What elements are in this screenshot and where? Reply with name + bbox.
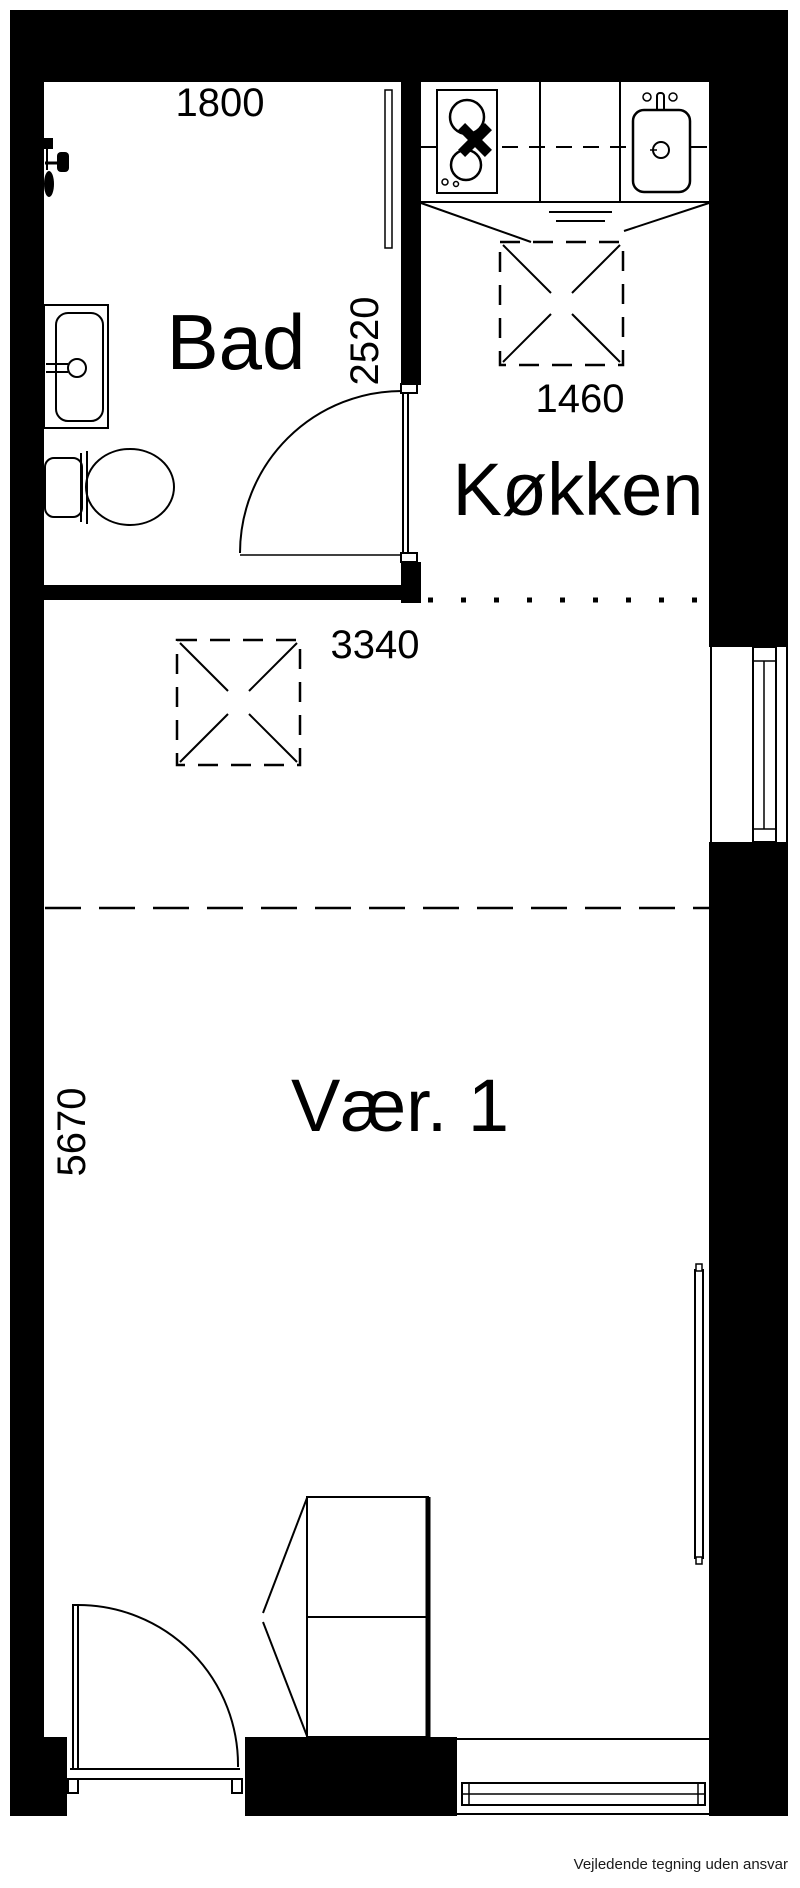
disclaimer-text: Vejledende tegning uden ansvar: [574, 1856, 788, 1873]
shower-icon: [42, 138, 69, 197]
cabinet-projection-lines: [421, 203, 709, 242]
room-label-room1: Vær. 1: [250, 1069, 550, 1143]
window-bottom: [457, 1739, 709, 1814]
dimension-room-depth: 5670: [52, 1088, 92, 1177]
entrance-door: [68, 1605, 242, 1793]
floor-plan: 1800 2520 1460 3340 5670 Bad Køkken Vær.…: [0, 0, 800, 1888]
bathroom-radiator-icon: [385, 90, 392, 248]
plan-linework: [0, 0, 800, 1888]
window-right: [711, 647, 787, 842]
kitchen-sink-icon: [633, 93, 690, 192]
dimension-room-marker: 3340: [275, 625, 475, 665]
room-label-bathroom: Bad: [136, 303, 336, 381]
kitchen-appliance-square: [500, 242, 623, 365]
washbasin-icon: [44, 305, 108, 428]
room-radiator-icon: [695, 1264, 703, 1564]
dimension-bathroom-depth: 2520: [345, 297, 385, 386]
cooktop-icon: [437, 90, 497, 193]
wardrobe-icon: [263, 1497, 428, 1737]
toilet-icon: [45, 449, 174, 525]
bathroom-door: [240, 384, 417, 562]
dimension-bathroom-width: 1800: [120, 83, 320, 123]
dimension-kitchen-marker: 1460: [480, 379, 680, 419]
room-label-kitchen: Køkken: [428, 453, 728, 527]
